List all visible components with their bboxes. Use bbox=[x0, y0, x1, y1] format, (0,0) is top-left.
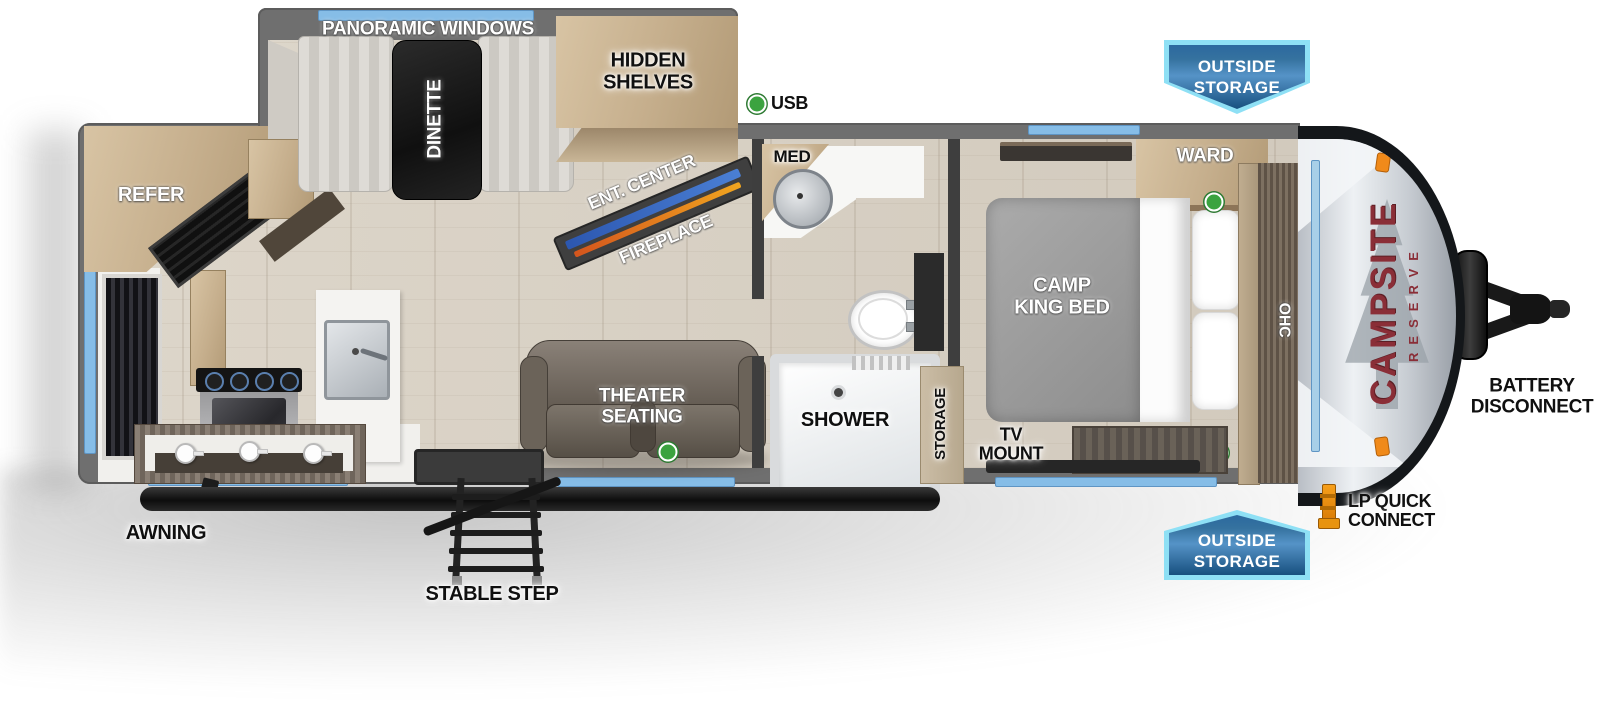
front-window-strip bbox=[1311, 160, 1320, 452]
label-tv-mount: TV MOUNT bbox=[979, 426, 1044, 465]
label-battery-disconnect: BATTERY DISCONNECT bbox=[1471, 376, 1594, 417]
lp-fitting-ring bbox=[1320, 494, 1336, 498]
badge-line: STORAGE bbox=[1194, 551, 1281, 572]
step-handrail bbox=[422, 476, 562, 537]
sofa-arm-left bbox=[520, 356, 548, 452]
wine-glass bbox=[303, 443, 324, 464]
floorplan-diagram: REFER DINETTE PANORAMIC WINDOWS HIDDEN S… bbox=[0, 0, 1600, 701]
rear-shadow bbox=[28, 130, 83, 490]
label-ohc: OHC bbox=[1275, 303, 1292, 338]
window-strip bbox=[557, 477, 735, 487]
window-strip bbox=[84, 270, 96, 454]
shower-shelf bbox=[852, 356, 910, 370]
label-ward: WARD bbox=[1177, 147, 1234, 168]
hitch-coupler bbox=[1510, 294, 1552, 324]
usb-indicator-dot bbox=[748, 95, 767, 114]
ohc-cabinet bbox=[1238, 163, 1260, 485]
kitchen-sink bbox=[324, 320, 390, 400]
lp-fitting-ring bbox=[1320, 506, 1336, 510]
badge-line: OUTSIDE bbox=[1198, 56, 1276, 77]
wine-glass bbox=[175, 443, 196, 464]
bed-pillow bbox=[1192, 210, 1240, 310]
bath-bedroom-divider bbox=[948, 139, 960, 371]
kitchen-island bbox=[134, 424, 366, 484]
brand-logo: CAMPSITE RESERVE bbox=[1346, 183, 1438, 423]
usb-indicator-dot bbox=[1205, 193, 1224, 212]
label-theater-seating: THEATER SEATING bbox=[599, 386, 685, 427]
bath-sink bbox=[773, 169, 833, 229]
wine-glass bbox=[239, 441, 260, 462]
label-shower: SHOWER bbox=[801, 410, 889, 432]
label-hidden-shelves: HIDDEN SHELVES bbox=[603, 50, 693, 93]
bath-panel bbox=[914, 253, 944, 351]
label-dinette: DINETTE bbox=[426, 79, 447, 158]
lp-fitting-base bbox=[1318, 518, 1340, 529]
label-usb: USB bbox=[771, 94, 808, 113]
label-storage: STORAGE bbox=[933, 388, 949, 460]
bath-sink-drain bbox=[797, 193, 803, 199]
clearance-light bbox=[1375, 152, 1392, 173]
stove-burner bbox=[205, 372, 224, 391]
bed-sheet bbox=[1140, 198, 1190, 422]
toilet-seat bbox=[858, 298, 908, 340]
badge-line: STORAGE bbox=[1194, 77, 1281, 98]
front-cap: CAMPSITE RESERVE bbox=[1298, 126, 1465, 506]
label-lp-quick-connect: LP QUICK CONNECT bbox=[1348, 492, 1435, 531]
label-camp-king-bed: CAMP KING BED bbox=[1014, 275, 1109, 318]
dinette-bench-left bbox=[298, 36, 394, 192]
brand-name: CAMPSITE bbox=[1364, 201, 1404, 406]
label-stable-step: STABLE STEP bbox=[425, 584, 558, 606]
sink-drain bbox=[352, 348, 359, 355]
window-strip bbox=[995, 477, 1217, 487]
clearance-light bbox=[1374, 436, 1391, 457]
badge-line: OUTSIDE bbox=[1198, 530, 1276, 551]
bed-pillow bbox=[1192, 312, 1240, 410]
outside-storage-badge-top: OUTSIDE STORAGE bbox=[1164, 40, 1310, 114]
brand-series: RESERVE bbox=[1406, 244, 1421, 362]
hitch-ball-mount bbox=[1550, 300, 1570, 318]
label-med: MED bbox=[774, 148, 811, 166]
bath-wall bbox=[752, 356, 764, 468]
shower-head bbox=[834, 388, 843, 397]
stove-burner bbox=[280, 372, 299, 391]
stove-burner bbox=[255, 372, 274, 391]
bedroom-shelf bbox=[1000, 142, 1132, 161]
label-awning: AWNING bbox=[126, 523, 206, 545]
window-strip bbox=[1028, 125, 1140, 135]
lp-quick-connect-fitting bbox=[1322, 484, 1336, 522]
usb-indicator-dot bbox=[659, 443, 678, 462]
stove-burner bbox=[230, 372, 249, 391]
stable-step-ladder bbox=[420, 476, 580, 586]
label-refer: REFER bbox=[118, 185, 184, 207]
label-panoramic-windows: PANORAMIC WINDOWS bbox=[322, 20, 534, 41]
